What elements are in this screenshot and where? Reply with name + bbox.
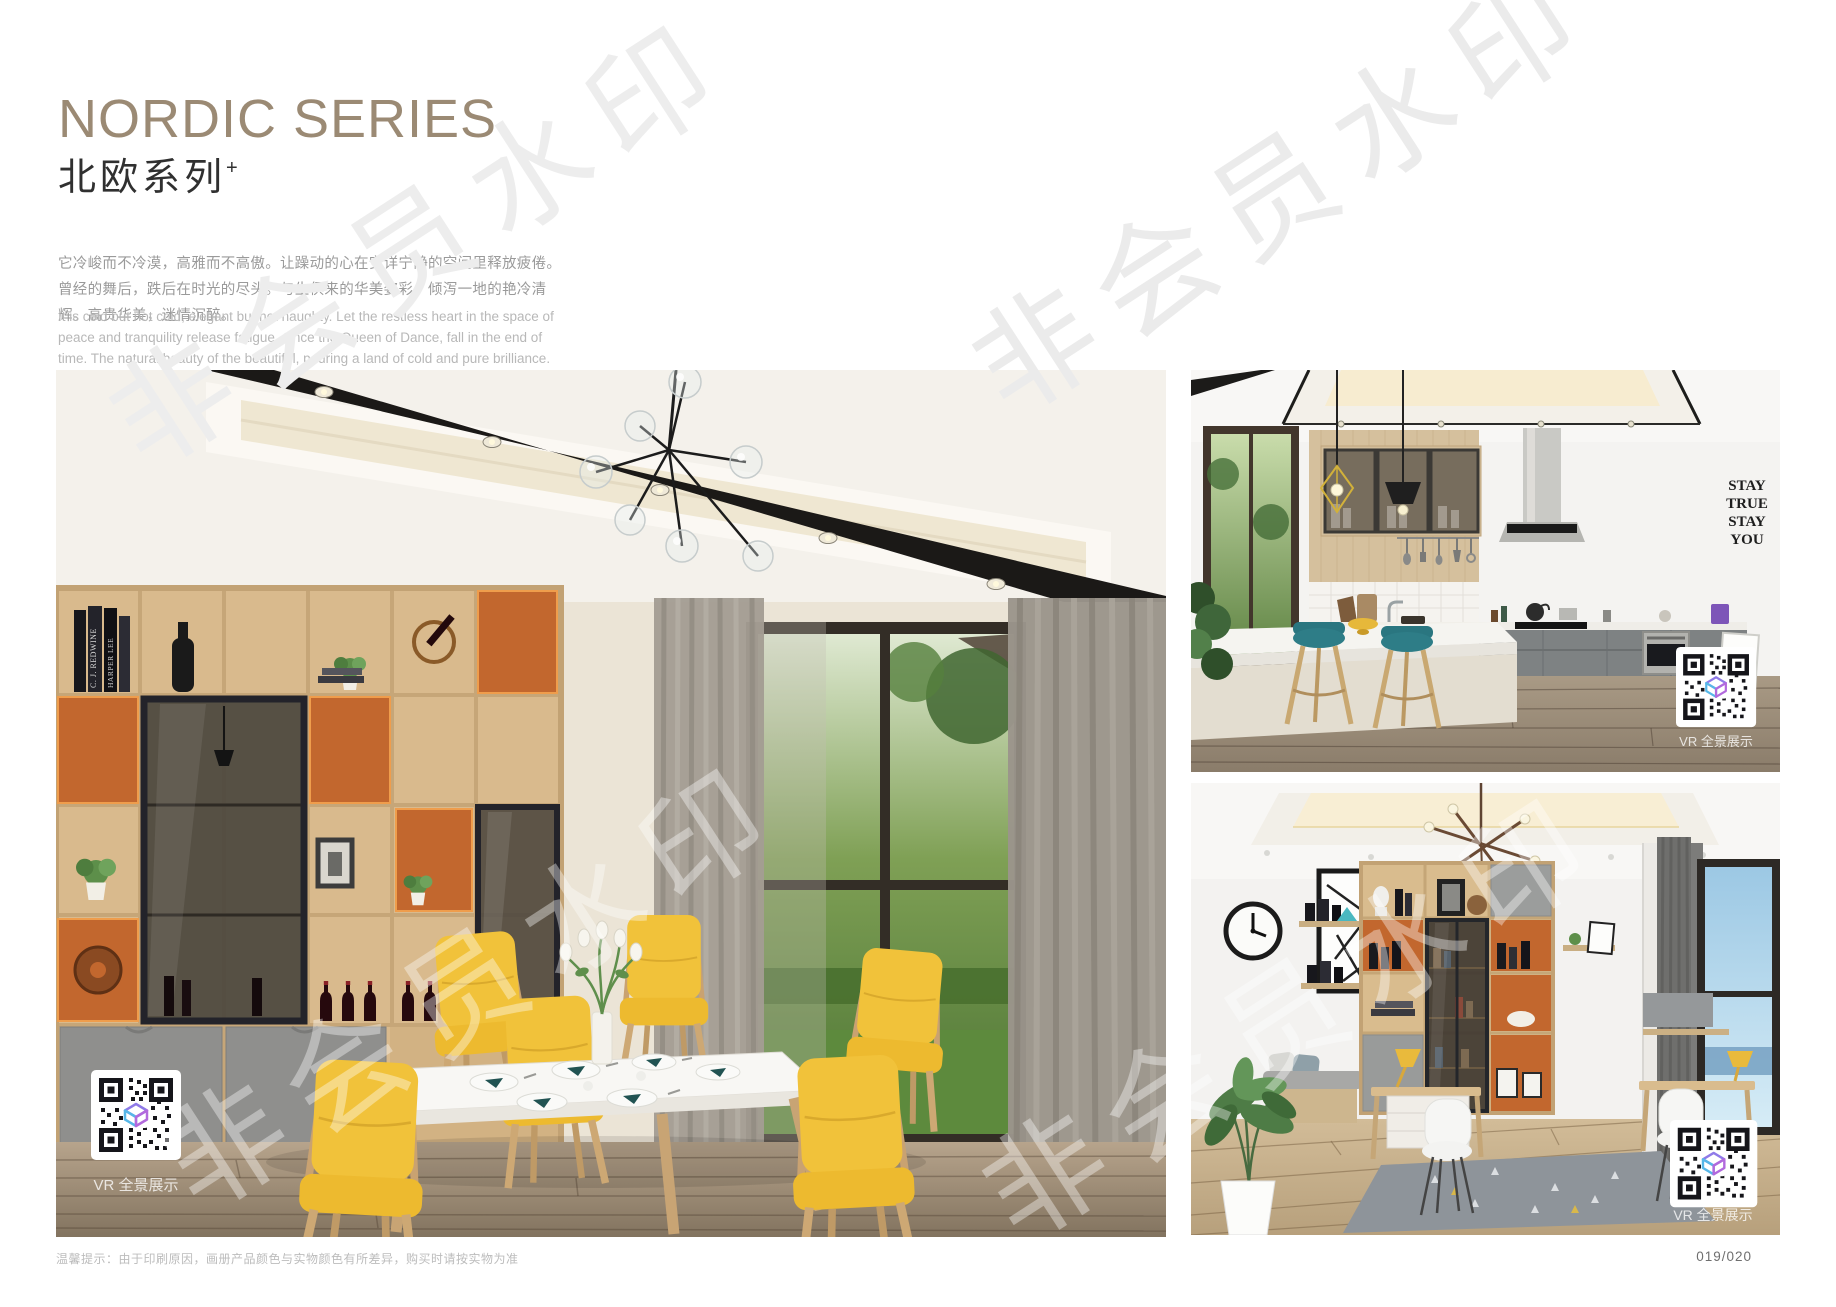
vr-label: VR 全景展示 — [93, 1176, 178, 1194]
bookcase — [1361, 863, 1553, 1113]
catalog-page: NORDIC SERIES 北欧系列+ 它冷峻而不冷漠，高雅而不高傲。让躁动的心… — [0, 0, 1836, 1307]
qr-code-icon — [1670, 1120, 1757, 1207]
book-spine-text: C. J. REDWINE — [89, 628, 98, 688]
photo-dining-room: C. J. REDWINE HARPER LEE — [56, 370, 1166, 1237]
subtitle-superscript: + — [226, 157, 238, 179]
vr-label: VR 全景展示 — [1679, 734, 1753, 749]
page-subtitle: 北欧系列+ — [58, 158, 238, 197]
decal-line: TRUE — [1726, 496, 1768, 512]
subtitle-text: 北欧系列 — [58, 157, 226, 199]
decal-line: YOU — [1730, 532, 1764, 548]
books-row: C. J. REDWINE HARPER LEE — [74, 606, 130, 692]
glass-cabinet-tall — [144, 699, 304, 1021]
photo-frame-shelf — [318, 840, 352, 886]
wall-clock — [1226, 904, 1280, 958]
page-title: NORDIC SERIES — [58, 92, 497, 146]
decal-line: STAY — [1728, 514, 1766, 530]
page-number: 019/020 — [1696, 1249, 1752, 1264]
decal-line: STAY — [1728, 478, 1766, 494]
floor — [56, 1136, 1166, 1237]
footer-note: 温馨提示：由于印刷原因，画册产品颜色与实物颜色有所差异，购买时请按实物为准 — [56, 1250, 519, 1267]
qr-code-icon — [91, 1070, 181, 1160]
photo-study-room: VR 全景展示 — [1191, 783, 1780, 1235]
island-counter — [1191, 616, 1517, 740]
qr-code-icon — [1676, 647, 1756, 727]
glass-display-cabinet — [1427, 920, 1487, 1111]
photo-kitchen: STAY TRUE STAY YOU — [1191, 370, 1780, 772]
book-spine-text: HARPER LEE — [106, 638, 115, 688]
rattan-plate — [75, 947, 121, 993]
vr-label: VR 全景展示 — [1673, 1207, 1752, 1223]
